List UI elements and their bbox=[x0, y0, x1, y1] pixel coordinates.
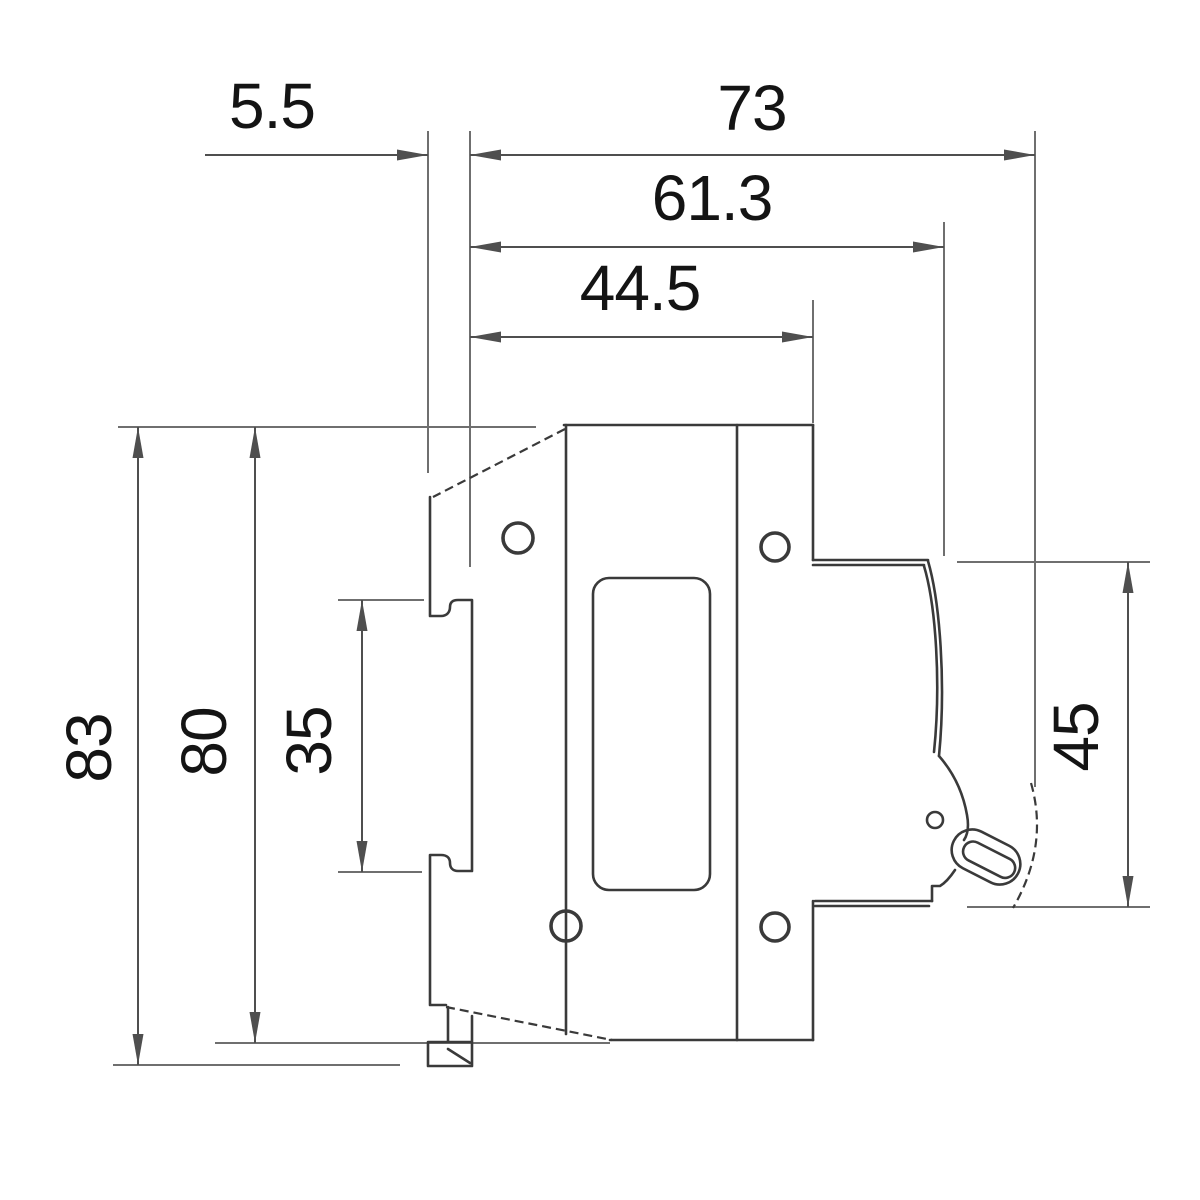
arrow-83-top bbox=[133, 427, 144, 458]
handle-pivot-hole bbox=[927, 812, 943, 828]
rivet-top-right bbox=[761, 533, 789, 561]
head-front-face bbox=[924, 561, 942, 756]
din-claws-and-channel bbox=[430, 497, 472, 1005]
label-din-offset: 5.5 bbox=[229, 70, 315, 142]
dashed-edges bbox=[433, 429, 1037, 1040]
label-body-height: 80 bbox=[168, 707, 240, 776]
pivot-bulge-lower bbox=[932, 870, 955, 901]
label-rail-slot-height: 35 bbox=[273, 706, 345, 775]
label-slot bbox=[593, 578, 710, 890]
head-bottom-step bbox=[815, 901, 932, 906]
arrow-5-5-left bbox=[397, 150, 428, 161]
pivot-bulge-upper bbox=[939, 756, 968, 840]
arrow-80-top bbox=[250, 427, 261, 458]
case-rivets bbox=[503, 523, 943, 941]
arrow-73-left bbox=[470, 150, 501, 161]
toggle-handle-outer bbox=[945, 822, 1028, 891]
label-body-depth: 44.5 bbox=[580, 252, 701, 324]
rivet-bottom-right bbox=[761, 913, 789, 941]
arrow-44-5-right bbox=[782, 332, 813, 343]
arrow-61-3-right bbox=[913, 242, 944, 253]
arrow-73-right bbox=[1004, 150, 1035, 161]
top-left-chamfer bbox=[433, 429, 565, 497]
arrow-44-5-left bbox=[470, 332, 501, 343]
label-overall-depth: 73 bbox=[717, 72, 786, 144]
din-clip-slider bbox=[428, 1007, 472, 1066]
arrow-45-bottom bbox=[1123, 876, 1134, 907]
label-face-depth: 61.3 bbox=[652, 162, 773, 234]
arrow-61-3-left bbox=[470, 242, 501, 253]
head-top-step bbox=[813, 560, 928, 565]
arrow-35-top bbox=[357, 600, 368, 631]
label-face-height: 45 bbox=[1040, 702, 1112, 771]
arrow-83-bottom bbox=[133, 1034, 144, 1065]
arrow-80-bottom bbox=[250, 1012, 261, 1043]
toggle-handle-inner bbox=[960, 838, 1019, 881]
arrow-35-bottom bbox=[357, 841, 368, 872]
toggle-handle bbox=[945, 822, 1028, 891]
rivet-top-left bbox=[503, 523, 533, 553]
breaker-outline bbox=[428, 425, 968, 1066]
label-overall-height: 83 bbox=[53, 713, 125, 782]
handle-swing-arc bbox=[1013, 783, 1037, 908]
arrow-45-top bbox=[1123, 562, 1134, 593]
dimension-drawing: 5.5 73 61.3 44.5 83 80 35 45 bbox=[0, 0, 1200, 1200]
